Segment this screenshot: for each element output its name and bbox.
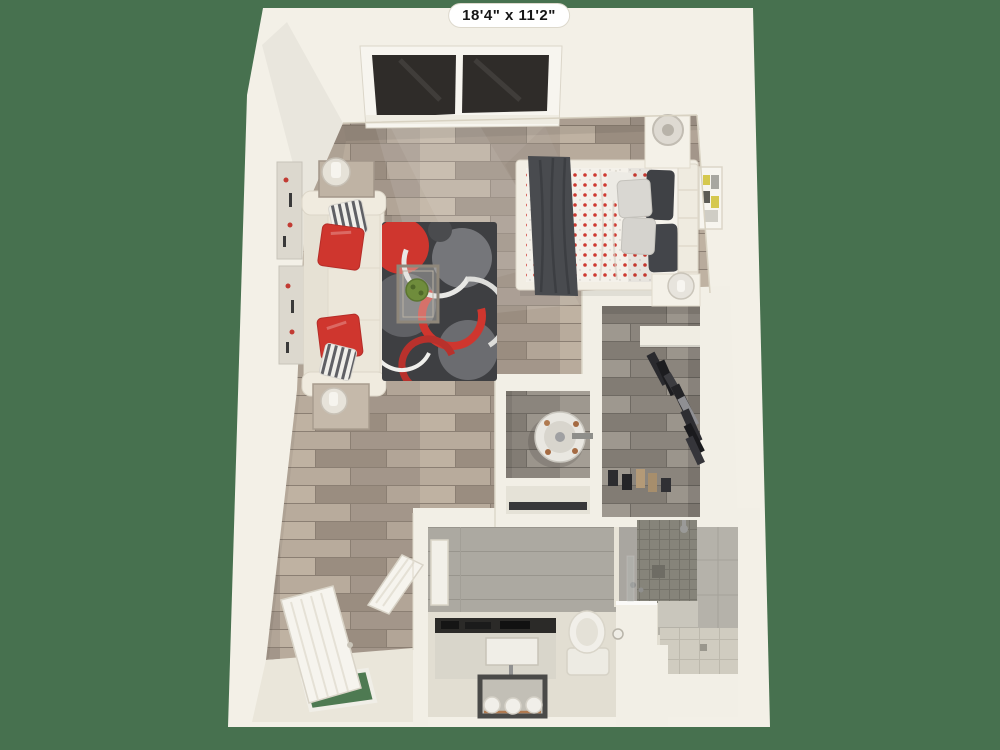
- sliding-window: [360, 46, 562, 128]
- headboard: [678, 164, 698, 286]
- nightstand-bottom: [652, 273, 700, 306]
- closet-shelf: [640, 326, 700, 348]
- vanity: [435, 618, 556, 683]
- bathroom-mirror: [431, 540, 448, 605]
- shower-floor: [660, 628, 738, 674]
- rolled-towel: [505, 698, 521, 714]
- nightstand-top: [645, 115, 690, 168]
- rolled-towel: [484, 697, 500, 713]
- window-glass-left: [372, 55, 456, 118]
- storage-nook: [506, 486, 590, 514]
- door-knob: [347, 642, 353, 648]
- floorplan-svg: [0, 0, 1000, 750]
- coffee-table: [398, 266, 438, 322]
- utility-alcove: [506, 391, 593, 514]
- walkin-closet: [602, 306, 705, 517]
- end-table-top: [319, 158, 374, 197]
- striped-pillow: [319, 343, 358, 382]
- rolled-towel: [526, 697, 542, 713]
- end-table-bottom: [313, 384, 369, 429]
- bathroom-left-wall: [413, 508, 428, 726]
- shower-niche: [652, 565, 665, 578]
- towel-shelf: [480, 677, 545, 716]
- sofa: [302, 191, 392, 396]
- vanity-sink: [486, 638, 538, 665]
- toilet-paper-holder: [613, 629, 623, 639]
- red-pillow: [317, 223, 364, 270]
- floorplan-stage: 18'4" x 11'2": [0, 0, 1000, 750]
- bathroom-wall-tile: [428, 527, 617, 612]
- dimension-label: 18'4" x 11'2": [448, 3, 570, 28]
- potted-plant: [406, 279, 428, 301]
- area-rug: [364, 218, 520, 398]
- shower-drain: [700, 644, 707, 651]
- glass-divider: [627, 556, 634, 602]
